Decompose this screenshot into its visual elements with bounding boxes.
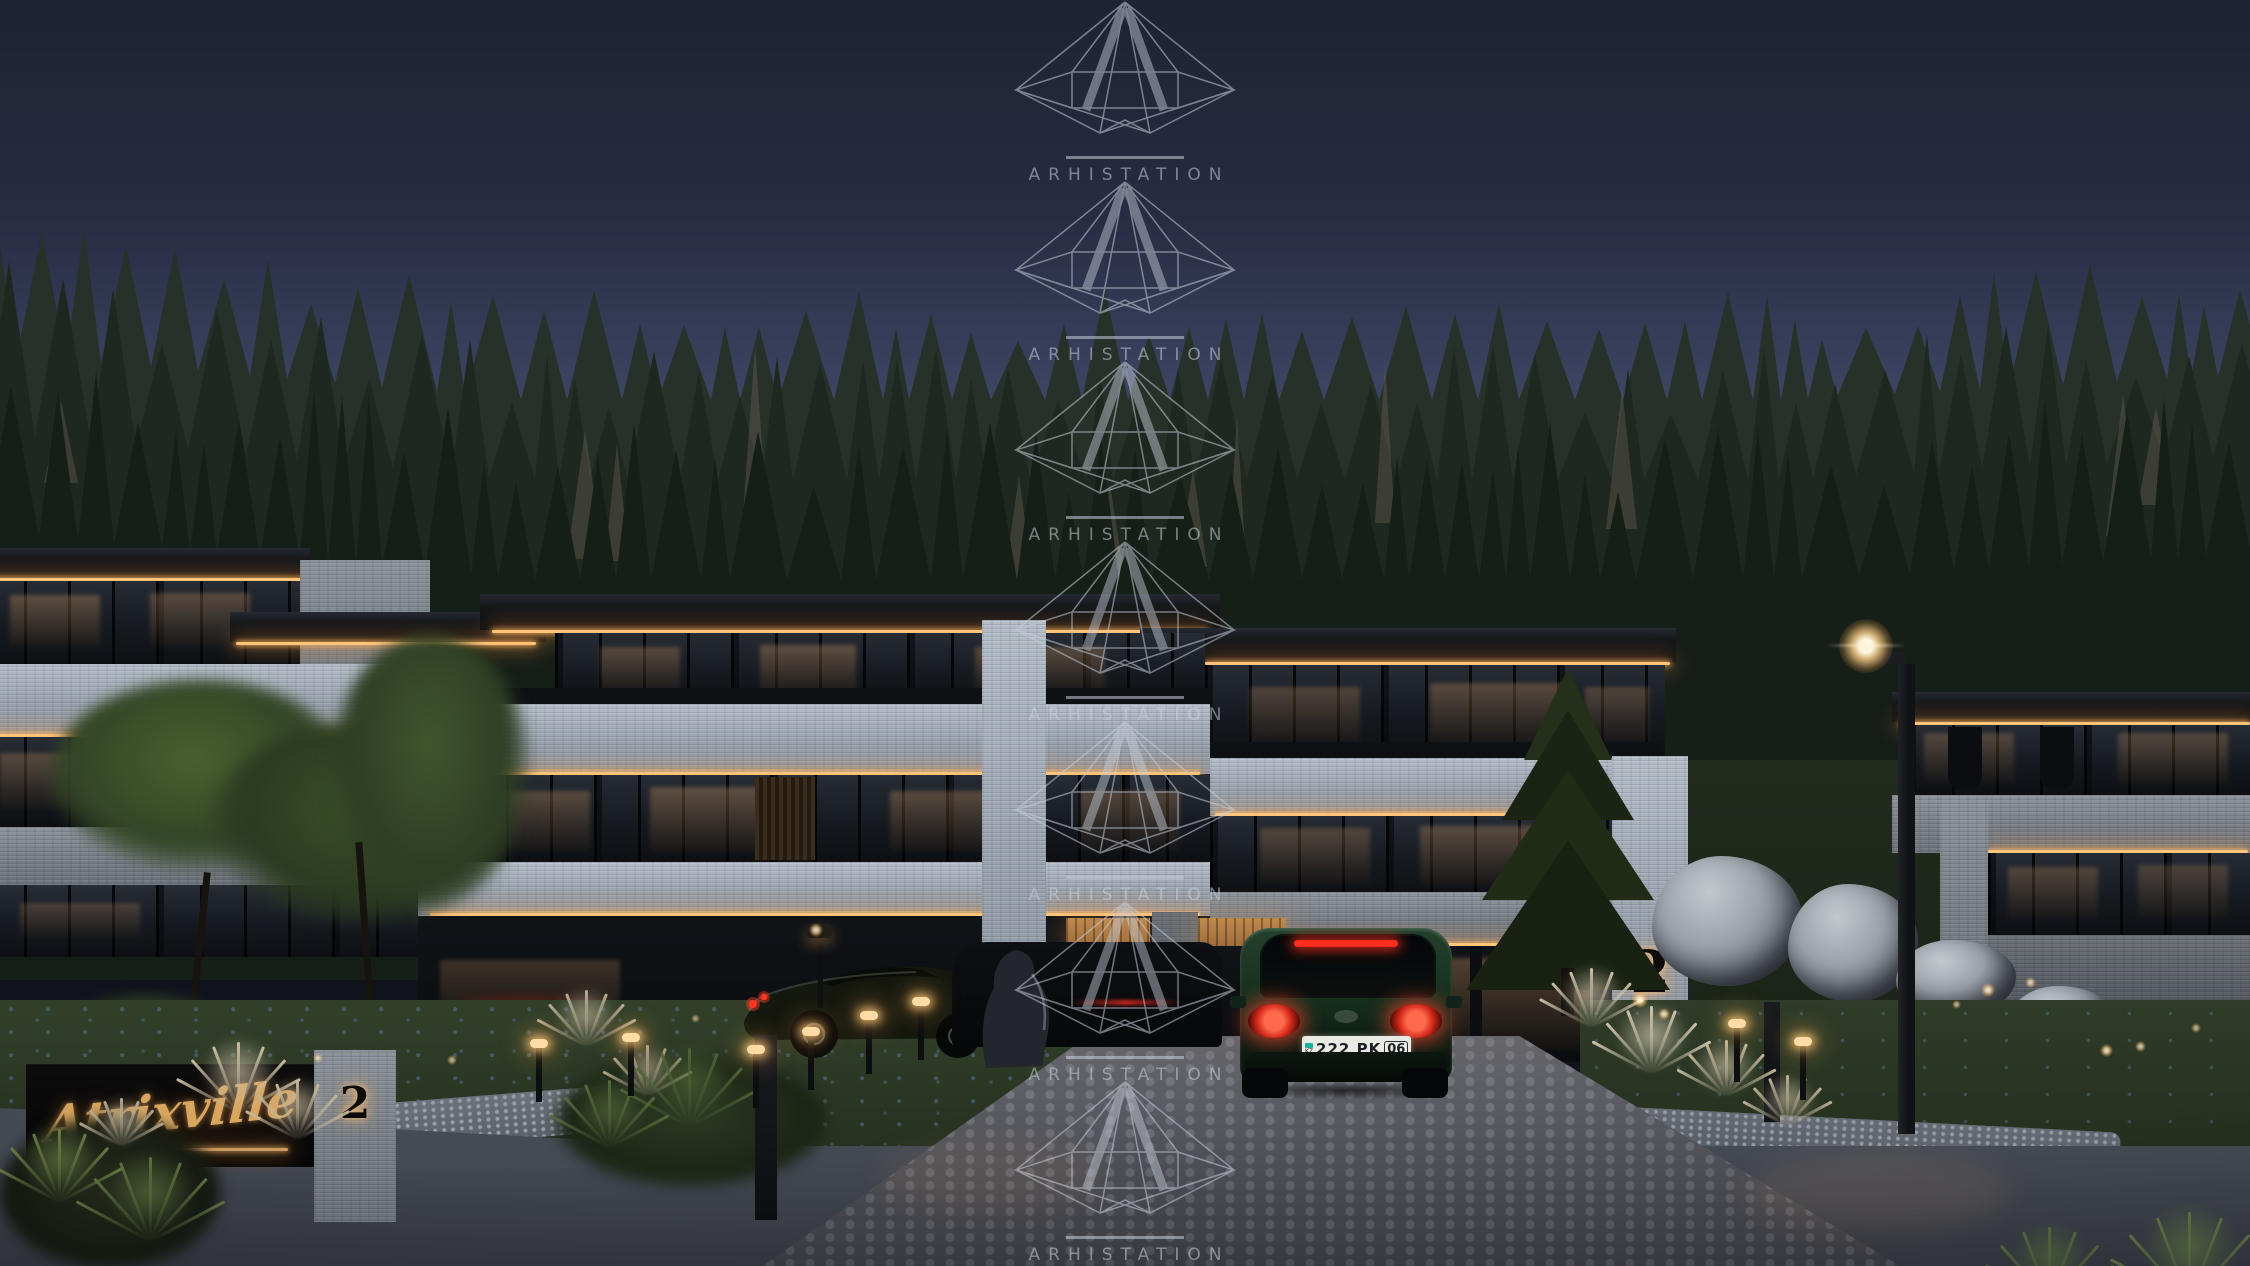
grass-blade [237, 1042, 240, 1112]
left-building-roof [0, 548, 310, 578]
main-roof [480, 594, 1220, 630]
green-suv: KZ 222 PK 06 [1238, 918, 1458, 1098]
main-band-lower [418, 862, 1210, 916]
path-light-glow [747, 1045, 765, 1054]
path-light [866, 1016, 872, 1074]
suv-wheel [1242, 1068, 1288, 1098]
lamp-flare [1826, 644, 1906, 647]
suv-taillight-right [1390, 1004, 1442, 1038]
path-light-glow [912, 997, 930, 1006]
grass-blade [149, 1157, 152, 1241]
path-light-glow [530, 1039, 548, 1048]
suv-mirror [1230, 996, 1246, 1008]
path-light-glow [622, 1033, 640, 1042]
night-villa-render: 2 Atrixville 2 [0, 0, 2250, 1266]
floor-lamp-shade [806, 924, 832, 938]
path-light [753, 1050, 759, 1108]
path-light [1734, 1024, 1740, 1082]
path-light-glow [802, 1027, 820, 1036]
grass-clump [84, 1105, 216, 1249]
suv-mirror [1446, 996, 1462, 1008]
path-light-glow [1794, 1037, 1812, 1046]
street-lamp-head [1862, 652, 1906, 664]
grass-blade [2048, 1227, 2051, 1266]
path-light [628, 1038, 634, 1096]
garden-statue [972, 944, 1058, 1074]
street-lamp-pole [1898, 664, 1915, 1134]
path-light [536, 1044, 542, 1102]
suv-brake-light [1294, 940, 1398, 947]
grass-clump [1993, 1183, 2107, 1266]
path-light-glow [860, 1011, 878, 1020]
suv-taillight-left [1248, 1004, 1300, 1038]
right-building-upper-glass [1908, 725, 2250, 795]
right-building-floor2-glass [1988, 853, 2250, 935]
suv-taillight-streak [1070, 1000, 1182, 1005]
path-light [808, 1032, 814, 1090]
grass-clump [252, 1046, 344, 1147]
path-light-glow [1728, 1019, 1746, 1028]
path-light [918, 1002, 924, 1060]
suv-badge [1334, 1010, 1358, 1023]
right-building-roof [1892, 692, 2250, 722]
wood-slats [755, 777, 815, 860]
floor2-glass [418, 775, 1210, 862]
grass-clump [557, 1040, 663, 1155]
floor-lamp-pole [818, 938, 823, 1008]
grass-clump [2120, 1156, 2250, 1266]
curtain [1948, 727, 1982, 789]
main-band-upper [418, 704, 1210, 774]
left-building-canopy-led [236, 642, 536, 645]
main-right-wing-roof [1140, 628, 1676, 662]
path-light [1800, 1042, 1806, 1100]
curtain [2040, 727, 2074, 789]
grass-clump [1748, 1047, 1827, 1133]
suv-wheel [1402, 1068, 1448, 1098]
grass-blade [2188, 1212, 2191, 1266]
